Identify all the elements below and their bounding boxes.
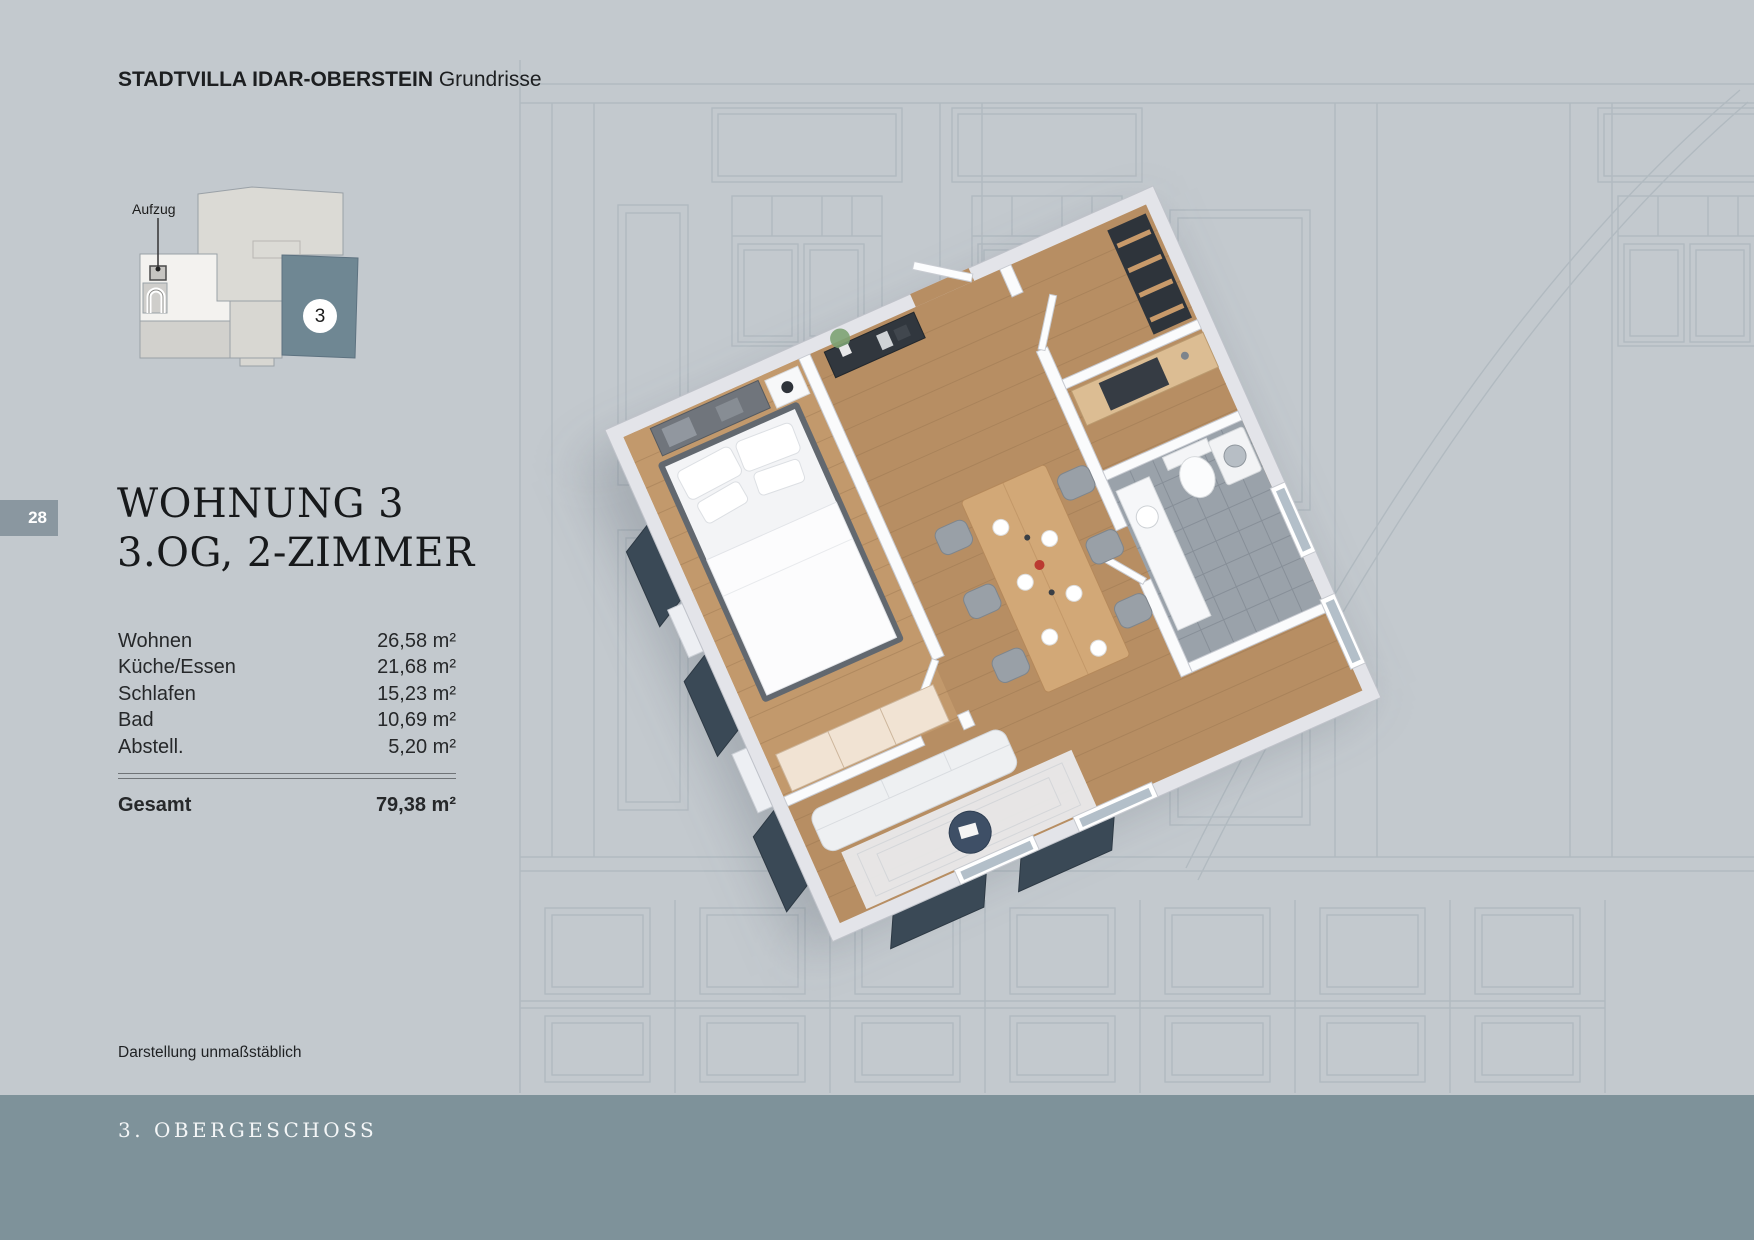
elevator-label: Aufzug [132, 201, 176, 217]
page-header: STADTVILLA IDAR-OBERSTEIN Grundrisse [118, 68, 542, 92]
brochure-page: STADTVILLA IDAR-OBERSTEIN Grundrisse Auf… [0, 0, 1754, 1240]
brand-title: STADTVILLA IDAR-OBERSTEIN [118, 68, 433, 91]
unit-badge-number: 3 [315, 306, 326, 327]
area-label: Abstell. [118, 734, 184, 760]
footer-bar: 3. OBERGESCHOSS [0, 1095, 1754, 1240]
area-value: 10,69 m² [377, 707, 456, 733]
total-row: Gesamt 79,38 m² [118, 794, 456, 817]
apartment-title-line1: WOHNUNG 3 [117, 480, 475, 529]
area-label: Schlafen [118, 681, 196, 707]
area-value: 5,20 m² [388, 734, 456, 760]
area-row: Schlafen 15,23 m² [118, 681, 456, 707]
total-label: Gesamt [118, 794, 191, 817]
area-row: Abstell. 5,20 m² [118, 734, 456, 760]
apartment-title-line2: 3.OG, 2-ZIMMER [117, 529, 475, 578]
scale-disclaimer: Darstellung unmaßstäblich [118, 1044, 302, 1062]
area-value: 15,23 m² [377, 681, 456, 707]
entrance-door [913, 262, 973, 282]
section-title: Grundrisse [439, 68, 542, 91]
area-label: Bad [118, 707, 154, 733]
area-table: Wohnen 26,58 m² Küche/Essen 21,68 m² Sch… [118, 628, 456, 817]
floor-level-label: 3. OBERGESCHOSS [118, 1118, 377, 1142]
apartment-title: WOHNUNG 3 3.OG, 2-ZIMMER [117, 480, 475, 578]
area-label: Wohnen [118, 628, 192, 654]
unit-locator-plan: Aufzug 3 [112, 166, 362, 376]
area-label: Küche/Essen [118, 654, 236, 680]
area-row: Küche/Essen 21,68 m² [118, 654, 456, 680]
area-row: Wohnen 26,58 m² [118, 628, 456, 654]
page-number: 28 [28, 508, 47, 528]
area-value: 21,68 m² [377, 654, 456, 680]
total-divider [118, 773, 456, 779]
floorplan-3d-render [520, 120, 1500, 1020]
page-number-tab: 28 [0, 500, 58, 536]
lower-wing [140, 321, 234, 358]
area-row: Bad 10,69 m² [118, 707, 456, 733]
total-value: 79,38 m² [376, 794, 456, 817]
area-value: 26,58 m² [377, 628, 456, 654]
